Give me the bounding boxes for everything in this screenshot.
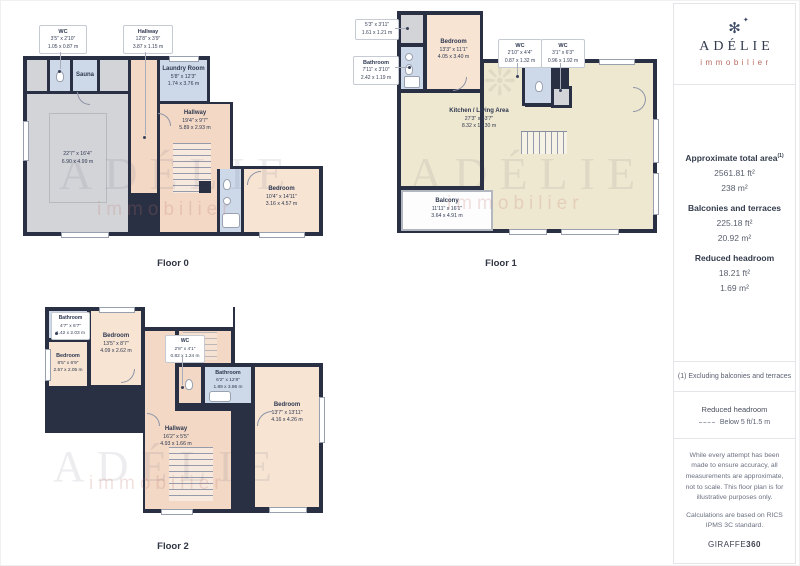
disclaimer-text: While every attempt has been made to ens… bbox=[683, 451, 786, 504]
room-label: Hallway 19'4" x 9'7" 5.89 x 2.93 m bbox=[160, 109, 230, 133]
legend-title: Reduced headroom bbox=[702, 405, 768, 414]
reduced-headroom-label: Reduced headroom bbox=[695, 253, 774, 263]
window bbox=[99, 307, 135, 313]
balconies-label: Balconies and terraces bbox=[688, 203, 781, 213]
area-stats: Approximate total area(1) 2561.81 ft² 23… bbox=[674, 85, 795, 362]
garage-upper bbox=[100, 60, 128, 91]
callout-leader bbox=[60, 52, 61, 69]
standard-text: Calculations are based on RICS IPMS 3C s… bbox=[683, 511, 786, 532]
window bbox=[161, 509, 193, 515]
window bbox=[259, 232, 305, 238]
window bbox=[269, 507, 307, 513]
footnote-marker: (1) bbox=[778, 153, 784, 159]
sink-icon bbox=[223, 197, 231, 205]
staircase bbox=[169, 447, 213, 501]
callout-bathroom: Bathroom 4'7" x 6'7" 1.42 x 2.03 m bbox=[51, 312, 90, 340]
toilet-icon bbox=[223, 179, 231, 190]
room-label: Bedroom 10'4" x 14'11" 3.16 x 4.57 m bbox=[244, 185, 319, 209]
callout-dot bbox=[181, 386, 184, 389]
total-area-label: Approximate total area(1) bbox=[685, 153, 783, 163]
window bbox=[61, 232, 109, 238]
callout-leader bbox=[182, 357, 183, 385]
legend: Reduced headroom Below 5 ft/1.5 m bbox=[674, 392, 795, 439]
sink-icon bbox=[405, 53, 413, 61]
room-label: Bathroom 6'2" x 12'8" 1.89 x 3.86 m bbox=[205, 370, 251, 392]
closet-room bbox=[401, 15, 423, 43]
callout-wc: WC 2'10" x 4'4" 0.87 x 1.32 m bbox=[498, 39, 542, 68]
reduced-headroom-m: 1.69 m² bbox=[720, 283, 749, 293]
floorplan-page: Sauna 22'7" x 16'4" 6.90 x 4.99 m Laundr… bbox=[0, 0, 800, 566]
brand-logo: ✻ ✦ ADÉLIE immobilier bbox=[674, 4, 795, 85]
staircase bbox=[521, 131, 567, 154]
balconies-m: 20.92 m² bbox=[718, 233, 752, 243]
sparkle-icon: ✦ bbox=[743, 17, 749, 24]
callout-leader bbox=[560, 63, 561, 90]
window bbox=[509, 229, 547, 235]
legend-item: Below 5 ft/1.5 m bbox=[699, 419, 770, 426]
callout-dot bbox=[58, 70, 61, 73]
room-label: Laundry Room 5'8" x 12'3" 1.74 x 3.76 m bbox=[160, 65, 207, 89]
bedroom-room bbox=[255, 367, 319, 507]
callout-wc: WC 3'5" x 2'10" 1.05 x 0.87 m bbox=[39, 25, 87, 54]
callout-dot bbox=[559, 89, 562, 92]
corridor bbox=[131, 60, 157, 193]
dashed-line-icon bbox=[699, 422, 715, 423]
toilet-icon bbox=[185, 379, 193, 390]
bathtub-icon bbox=[222, 213, 240, 228]
footnote: (1) Excluding balconies and terraces bbox=[674, 362, 795, 392]
mask bbox=[233, 56, 323, 166]
star-icon: ✻ ✦ bbox=[728, 21, 741, 36]
floor-label: Floor 0 bbox=[123, 258, 223, 269]
callout-leader bbox=[145, 52, 146, 135]
callout-dot bbox=[406, 27, 409, 30]
callout-wc: WC 3'1" x 6'3" 0.96 x 1.92 m bbox=[541, 39, 585, 68]
toilet-icon bbox=[535, 81, 543, 92]
window bbox=[319, 397, 325, 443]
room-label: Bedroom 13'3" x 11'1" 4.05 x 3.40 m bbox=[427, 38, 480, 62]
brand-name: ADÉLIE bbox=[695, 39, 774, 55]
total-area-ft: 2561.81 ft² bbox=[714, 168, 755, 178]
callout-dot bbox=[516, 75, 519, 78]
room-label: Hallway 16'2" x 5'5" 4.93 x 1.66 m bbox=[145, 425, 207, 449]
info-sidebar: ✻ ✦ ADÉLIE immobilier Approximate total … bbox=[673, 3, 796, 564]
callout-hallway: Hallway 12'8" x 3'9" 3.87 x 1.15 m bbox=[123, 25, 173, 54]
room-label: Bedroom 13'7" x 13'11" 4.16 x 4.26 m bbox=[255, 401, 319, 425]
brand-tagline: immobilier bbox=[697, 58, 771, 67]
disclaimer-section: While every attempt has been made to ens… bbox=[674, 439, 795, 563]
room-label: 22'7" x 16'4" 6.90 x 4.99 m bbox=[27, 151, 128, 166]
floor-label: Floor 1 bbox=[451, 258, 551, 269]
callout-bathroom: Bathroom 7'11" x 3'10" 2.42 x 1.19 m bbox=[353, 56, 399, 85]
mask bbox=[235, 307, 323, 363]
giraffe360-credit: GIRAFFE360 bbox=[683, 539, 786, 551]
callout-dot bbox=[55, 332, 58, 335]
window bbox=[169, 56, 199, 62]
total-area-m: 238 m² bbox=[721, 183, 747, 193]
window bbox=[599, 59, 635, 65]
window bbox=[561, 229, 619, 235]
storage-room bbox=[27, 60, 47, 91]
room-label: Bedroom 13'5" x 8'7" 4.09 x 2.62 m bbox=[91, 332, 141, 356]
callout-dot bbox=[408, 66, 411, 69]
callout-dot bbox=[143, 136, 146, 139]
callout-closet: 5'3" x 3'11" 1.61 x 1.21 m bbox=[355, 19, 399, 40]
room-label: Kitchen / Living Area 27'3" x 43'7" 8.32… bbox=[429, 107, 529, 131]
stair-landing bbox=[199, 181, 211, 193]
room-label: Sauna bbox=[73, 71, 97, 80]
reduced-headroom-ft: 18.21 ft² bbox=[719, 268, 750, 278]
mask bbox=[210, 56, 234, 102]
balconies-ft: 225.18 ft² bbox=[717, 218, 753, 228]
floor-label: Floor 2 bbox=[123, 541, 223, 552]
mask bbox=[45, 433, 143, 513]
window bbox=[653, 173, 659, 215]
callout-leader bbox=[395, 67, 409, 68]
shower-icon bbox=[404, 76, 420, 88]
window bbox=[653, 119, 659, 163]
callout-wc: WC 2'8" x 4'1" 0.82 x 1.24 m bbox=[165, 335, 205, 363]
room-label: Bedroom 8'5" x 6'9" 2.57 x 2.05 m bbox=[49, 353, 87, 375]
room-label: Balcony 11'11" x 16'1" 3.64 x 4.91 m bbox=[403, 197, 491, 221]
bathtub-icon bbox=[209, 391, 231, 402]
mask bbox=[145, 307, 233, 327]
